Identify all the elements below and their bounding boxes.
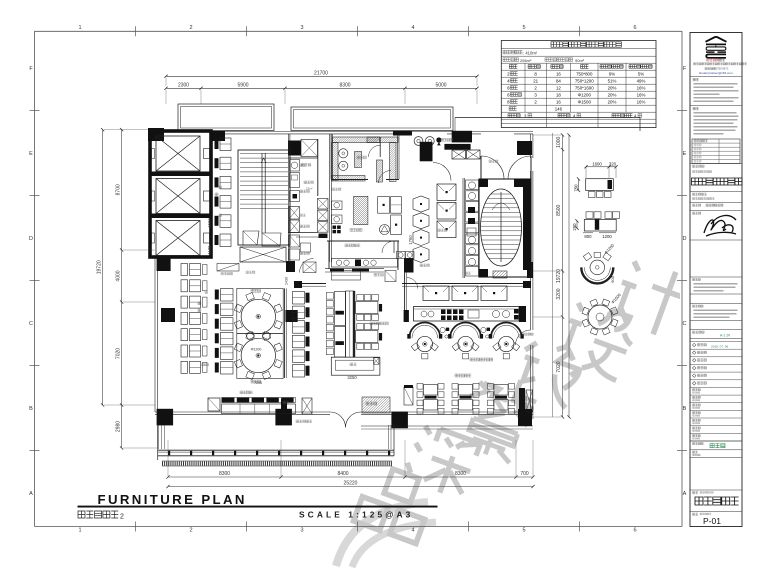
svg-text:600: 600: [610, 275, 615, 282]
svg-text:256m²: 256m²: [520, 58, 532, 63]
svg-text:16%: 16%: [637, 99, 646, 104]
svg-text:16: 16: [556, 71, 561, 76]
svg-text:Φ1500: Φ1500: [578, 99, 592, 104]
svg-text:A: A: [29, 491, 33, 497]
svg-text:2018. 07. 06: 2018. 07. 06: [711, 345, 728, 349]
svg-text:C: C: [683, 321, 687, 327]
svg-text:16%: 16%: [637, 85, 646, 90]
svg-text:750*800: 750*800: [576, 71, 593, 76]
svg-text:4: 4: [411, 528, 414, 534]
svg-text:5000: 5000: [435, 83, 446, 89]
svg-text:7020: 7020: [116, 348, 122, 359]
svg-text:90m²: 90m²: [575, 58, 585, 63]
svg-text:2: 2: [120, 514, 124, 521]
svg-text:D: D: [29, 236, 33, 242]
svg-text:1200: 1200: [602, 234, 612, 239]
svg-text:4000: 4000: [116, 270, 122, 281]
svg-text:18: 18: [556, 92, 561, 97]
svg-text:8500: 8500: [556, 204, 562, 215]
svg-text:1: 1: [78, 25, 81, 31]
svg-text:1180: 1180: [207, 245, 212, 255]
svg-text:21: 21: [533, 78, 538, 83]
svg-text:A: A: [683, 491, 687, 497]
svg-text:6: 6: [633, 528, 636, 534]
svg-text:20%: 20%: [608, 85, 617, 90]
svg-text:E: E: [29, 151, 33, 157]
svg-text:Φ1200: Φ1200: [578, 92, 592, 97]
svg-text:700: 700: [520, 471, 529, 477]
svg-text:3: 3: [300, 528, 303, 534]
svg-text:8300: 8300: [339, 83, 350, 89]
svg-text:8700: 8700: [116, 184, 122, 195]
svg-text:2: 2: [189, 528, 192, 534]
svg-text:12: 12: [556, 85, 561, 90]
svg-text:16: 16: [556, 99, 561, 104]
svg-text:1: 1: [78, 528, 81, 534]
svg-text:8300: 8300: [455, 471, 466, 477]
svg-text:P-01: P-01: [703, 516, 721, 526]
svg-text:B: B: [683, 406, 687, 412]
svg-text:2980: 2980: [116, 421, 122, 432]
svg-text:9%: 9%: [609, 71, 615, 76]
svg-text:SCALE 1:125@A3: SCALE 1:125@A3: [299, 510, 413, 520]
svg-text:1500: 1500: [207, 218, 212, 228]
svg-text:2300: 2300: [178, 83, 189, 89]
svg-text:250: 250: [572, 223, 577, 231]
svg-text:5900: 5900: [237, 83, 248, 89]
svg-text:800: 800: [584, 234, 592, 239]
svg-text:Φ1200: Φ1200: [251, 348, 262, 352]
svg-text:1500: 1500: [201, 363, 209, 367]
svg-text:1600: 1600: [592, 162, 602, 167]
svg-text:146: 146: [555, 106, 563, 111]
svg-text:A-1 2#: A-1 2#: [720, 334, 730, 338]
svg-text:B: B: [29, 406, 33, 412]
svg-text:7095: 7095: [254, 381, 262, 385]
svg-text:6: 6: [633, 25, 636, 31]
svg-text:FURNITURE PLAN: FURNITURE PLAN: [98, 492, 247, 507]
svg-text:7020: 7020: [556, 361, 562, 372]
svg-text:2: 2: [189, 25, 192, 31]
svg-text:49%: 49%: [637, 78, 646, 83]
svg-text:25220: 25220: [344, 481, 358, 487]
svg-text:3200: 3200: [556, 288, 562, 299]
svg-text:84: 84: [556, 78, 561, 83]
svg-text:20%: 20%: [608, 92, 617, 97]
svg-text:750*1200: 750*1200: [575, 78, 594, 83]
svg-text:4: 4: [411, 25, 414, 31]
svg-text:1000: 1000: [556, 136, 562, 147]
svg-text:8300: 8300: [219, 471, 230, 477]
svg-text:3250: 3250: [347, 375, 357, 380]
svg-text:: 410m²: : 410m²: [523, 51, 538, 56]
svg-text:750*1600: 750*1600: [575, 85, 594, 90]
svg-text:1430: 1430: [285, 277, 289, 285]
svg-text:5: 5: [522, 25, 525, 31]
svg-text:Email:pinshen@163.com: Email:pinshen@163.com: [699, 71, 733, 75]
svg-text:20%: 20%: [608, 99, 617, 104]
svg-text:E: E: [683, 151, 687, 157]
svg-text:19720: 19720: [97, 260, 103, 274]
svg-text:8400: 8400: [337, 471, 348, 477]
svg-text:5: 5: [522, 528, 525, 534]
svg-text:5%: 5%: [638, 71, 644, 76]
svg-text:0755 8672: 0755 8672: [716, 67, 729, 71]
svg-text:750: 750: [574, 184, 579, 192]
svg-text:3: 3: [300, 25, 303, 31]
svg-text:51%: 51%: [608, 78, 617, 83]
svg-text:1760: 1760: [408, 235, 413, 245]
svg-text:C: C: [29, 321, 33, 327]
svg-text:D: D: [683, 236, 687, 242]
svg-text:16%: 16%: [637, 92, 646, 97]
svg-text:21700: 21700: [314, 71, 328, 77]
